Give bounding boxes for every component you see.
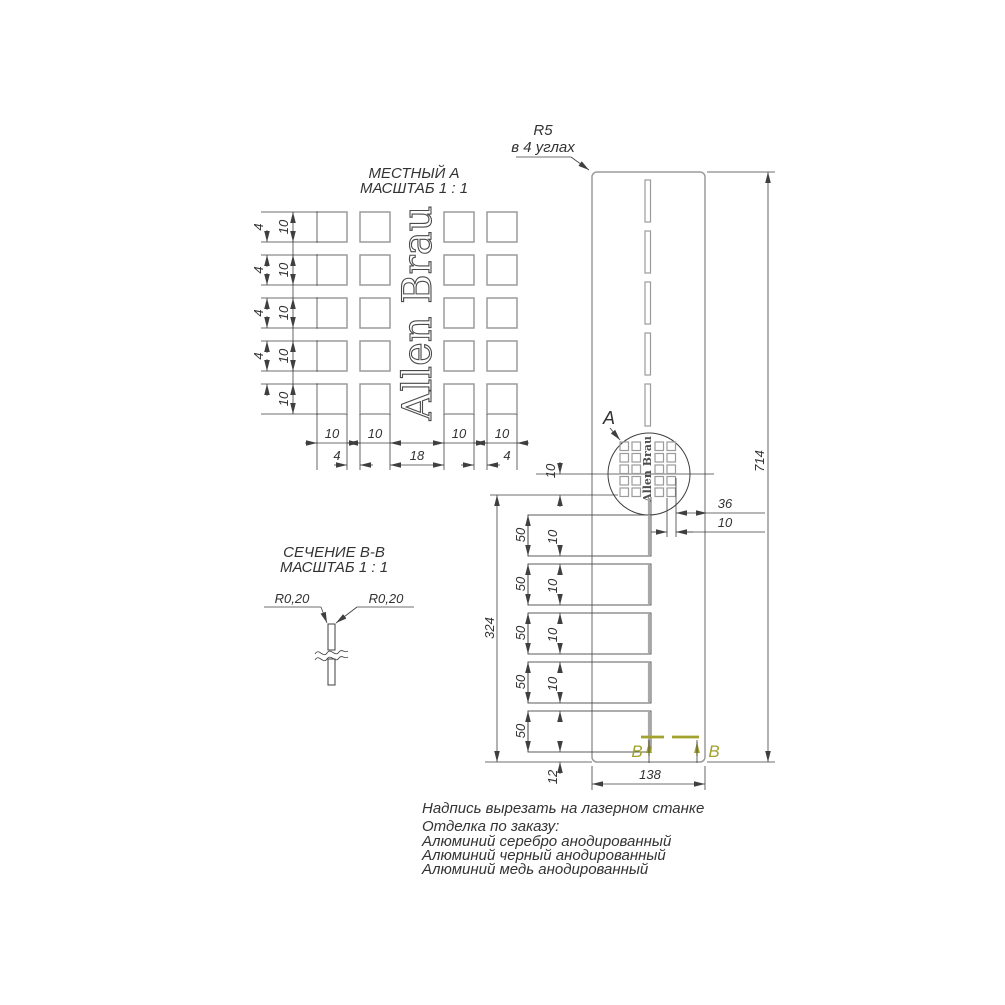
dim-label-row-10: 10	[276, 305, 291, 320]
dim-label-row-10: 10	[276, 262, 291, 277]
dim-label-row-10: 10	[276, 348, 291, 363]
dim-label-10: 10	[545, 676, 560, 691]
dim-label-center-18: 18	[410, 448, 425, 463]
dim-label-col-10: 10	[368, 426, 383, 441]
dim-label-50: 50	[513, 527, 528, 542]
dim-label-row-10: 10	[276, 219, 291, 234]
dim-label-10: 10	[545, 529, 560, 544]
radius-note-text: в 4 углах	[511, 139, 575, 156]
dim-label-10-row: 10	[543, 463, 558, 478]
dim-label-10: 10	[545, 627, 560, 642]
dim-label-138: 138	[639, 767, 661, 782]
dim-label-10-cell: 10	[718, 515, 733, 530]
radius-label-left: R0,20	[275, 591, 310, 606]
dim-label-gap-4: 4	[251, 223, 266, 230]
dim-label-50: 50	[513, 723, 528, 738]
dim-label-colgap-4: 4	[333, 448, 340, 463]
detail-label-a: A	[602, 408, 615, 428]
dim-label-col-10: 10	[452, 426, 467, 441]
dim-label-36: 36	[718, 496, 733, 511]
dim-label-714: 714	[752, 450, 767, 472]
dim-label-gap-4: 4	[251, 309, 266, 316]
dim-label-12: 12	[545, 769, 560, 784]
panel-logo-text: Allen Brau	[641, 436, 654, 503]
dim-label-50: 50	[513, 625, 528, 640]
section-letter-left: B	[631, 742, 642, 761]
dim-label-324: 324	[482, 617, 497, 639]
section-letter-right: B	[708, 742, 719, 761]
radius-note-value: R5	[533, 122, 553, 139]
technical-drawing: МЕСТНЫЙ А МАСШТАБ 1 : 1 Allen Brau 10 10…	[0, 0, 1005, 1005]
dim-label-row-10: 10	[276, 391, 291, 406]
dim-label-10: 10	[545, 578, 560, 593]
note-line-1: Надпись вырезать на лазерном станке	[422, 800, 704, 817]
note-line-5: Алюминий медь анодированный	[421, 861, 649, 878]
local-view-logo-text: Allen Brau	[395, 206, 441, 422]
dim-label-col-10: 10	[495, 426, 510, 441]
local-view-scale: МАСШТАБ 1 : 1	[360, 180, 468, 197]
section-view-scale: МАСШТАБ 1 : 1	[280, 559, 388, 576]
dim-label-gap-4: 4	[251, 266, 266, 273]
dim-label-gap-4: 4	[251, 352, 266, 359]
dim-label-col-10: 10	[325, 426, 340, 441]
dim-label-50: 50	[513, 674, 528, 689]
drawing-sheet: МЕСТНЫЙ А МАСШТАБ 1 : 1 Allen Brau 10 10…	[0, 0, 1005, 1005]
dim-label-colgap-4: 4	[503, 448, 510, 463]
radius-label-right: R0,20	[369, 591, 404, 606]
dim-label-50: 50	[513, 576, 528, 591]
